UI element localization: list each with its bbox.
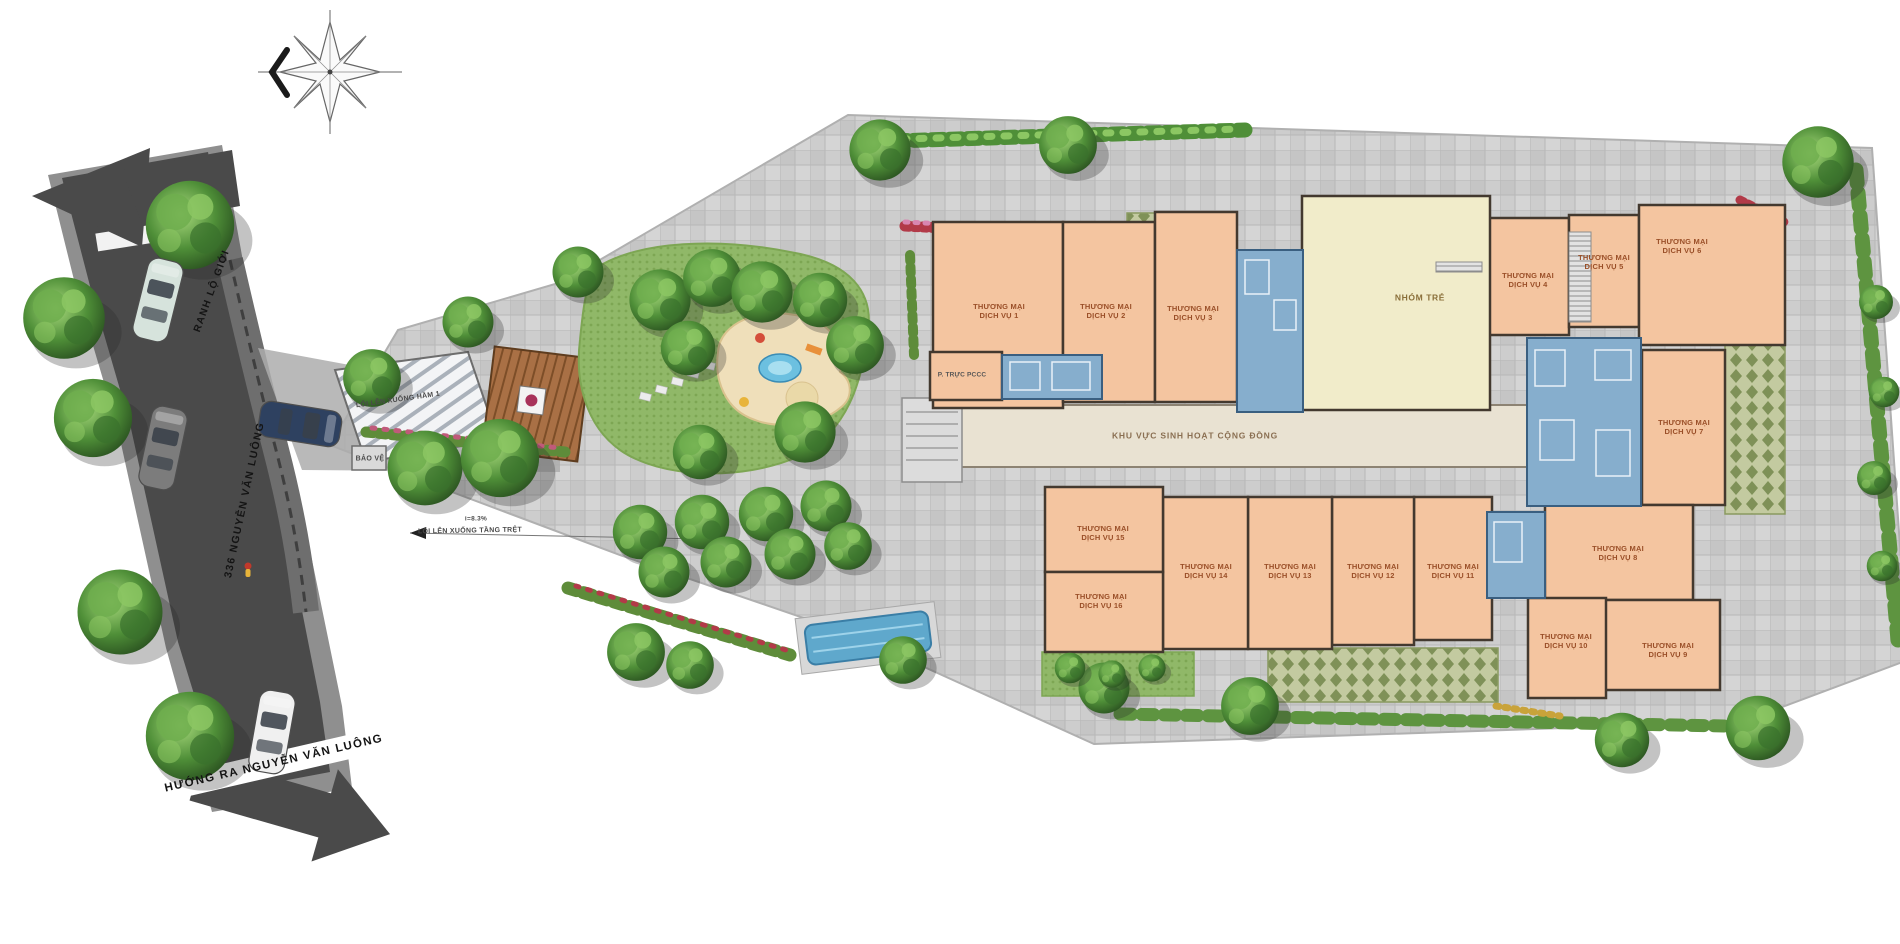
kindergarten-label: NHÓM TRẺ — [1395, 294, 1445, 303]
unit-10-label: THƯƠNG MẠIDỊCH VỤ 10 — [1540, 632, 1592, 650]
core-stairs-1 — [1237, 250, 1303, 412]
unit-7-label: THƯƠNG MẠIDỊCH VỤ 7 — [1658, 418, 1710, 436]
unit-4-label: THƯƠNG MẠIDỊCH VỤ 4 — [1502, 271, 1554, 289]
compass-rose-icon — [258, 10, 402, 134]
unit-2-label: THƯƠNG MẠIDỊCH VỤ 2 — [1080, 302, 1132, 320]
unit-11-label: THƯƠNG MẠIDỊCH VỤ 11 — [1427, 562, 1479, 580]
unit-15-label: THƯƠNG MẠIDỊCH VỤ 15 — [1077, 524, 1129, 542]
unit-12-label: THƯƠNG MẠIDỊCH VỤ 12 — [1347, 562, 1399, 580]
lobby-entry — [902, 398, 962, 482]
unit-8-label: THƯƠNG MẠIDỊCH VỤ 8 — [1592, 544, 1644, 562]
unit-6-label: THƯƠNG MẠIDỊCH VỤ 6 — [1656, 237, 1708, 255]
unit-13-label: THƯƠNG MẠIDỊCH VỤ 13 — [1264, 562, 1316, 580]
core-stairs-3 — [1487, 512, 1545, 598]
green-paver-bottom — [1268, 648, 1498, 702]
unit-6-room — [1639, 205, 1785, 345]
core-stairs-2 — [1527, 338, 1641, 506]
site-plan: RANH LỘ GIỚI 336 NGUYỄN VĂN LUÔNG HƯỚNG … — [0, 0, 1900, 944]
unit-16-label: THƯƠNG MẠIDỊCH VỤ 16 — [1075, 592, 1127, 610]
security-label: BẢO VỆ — [356, 455, 385, 464]
unit-16-room — [1045, 572, 1163, 652]
unit-5-label: THƯƠNG MẠIDỊCH VỤ 5 — [1578, 253, 1630, 271]
fire-duty-room-label: P. TRỰC PCCC — [938, 371, 986, 380]
community-area-label: KHU VỰC SINH HOẠT CỘNG ĐỒNG — [1112, 432, 1278, 441]
unit-9-label: THƯƠNG MẠIDỊCH VỤ 9 — [1642, 641, 1694, 659]
kindergarten-room — [1302, 196, 1490, 410]
green-paver-right — [1725, 342, 1785, 514]
ground-ramp-slope: i=8.3% — [465, 515, 487, 524]
site-plan-drawing — [0, 0, 1900, 944]
unit-14-label: THƯƠNG MẠIDỊCH VỤ 14 — [1180, 562, 1232, 580]
ground-ramp-label: LỐI LÊN XUỐNG TẦNG TRỆT — [418, 526, 522, 537]
unit-3-label: THƯƠNG MẠIDỊCH VỤ 3 — [1167, 304, 1219, 322]
unit-1-label: THƯƠNG MẠIDỊCH VỤ 1 — [973, 302, 1025, 320]
